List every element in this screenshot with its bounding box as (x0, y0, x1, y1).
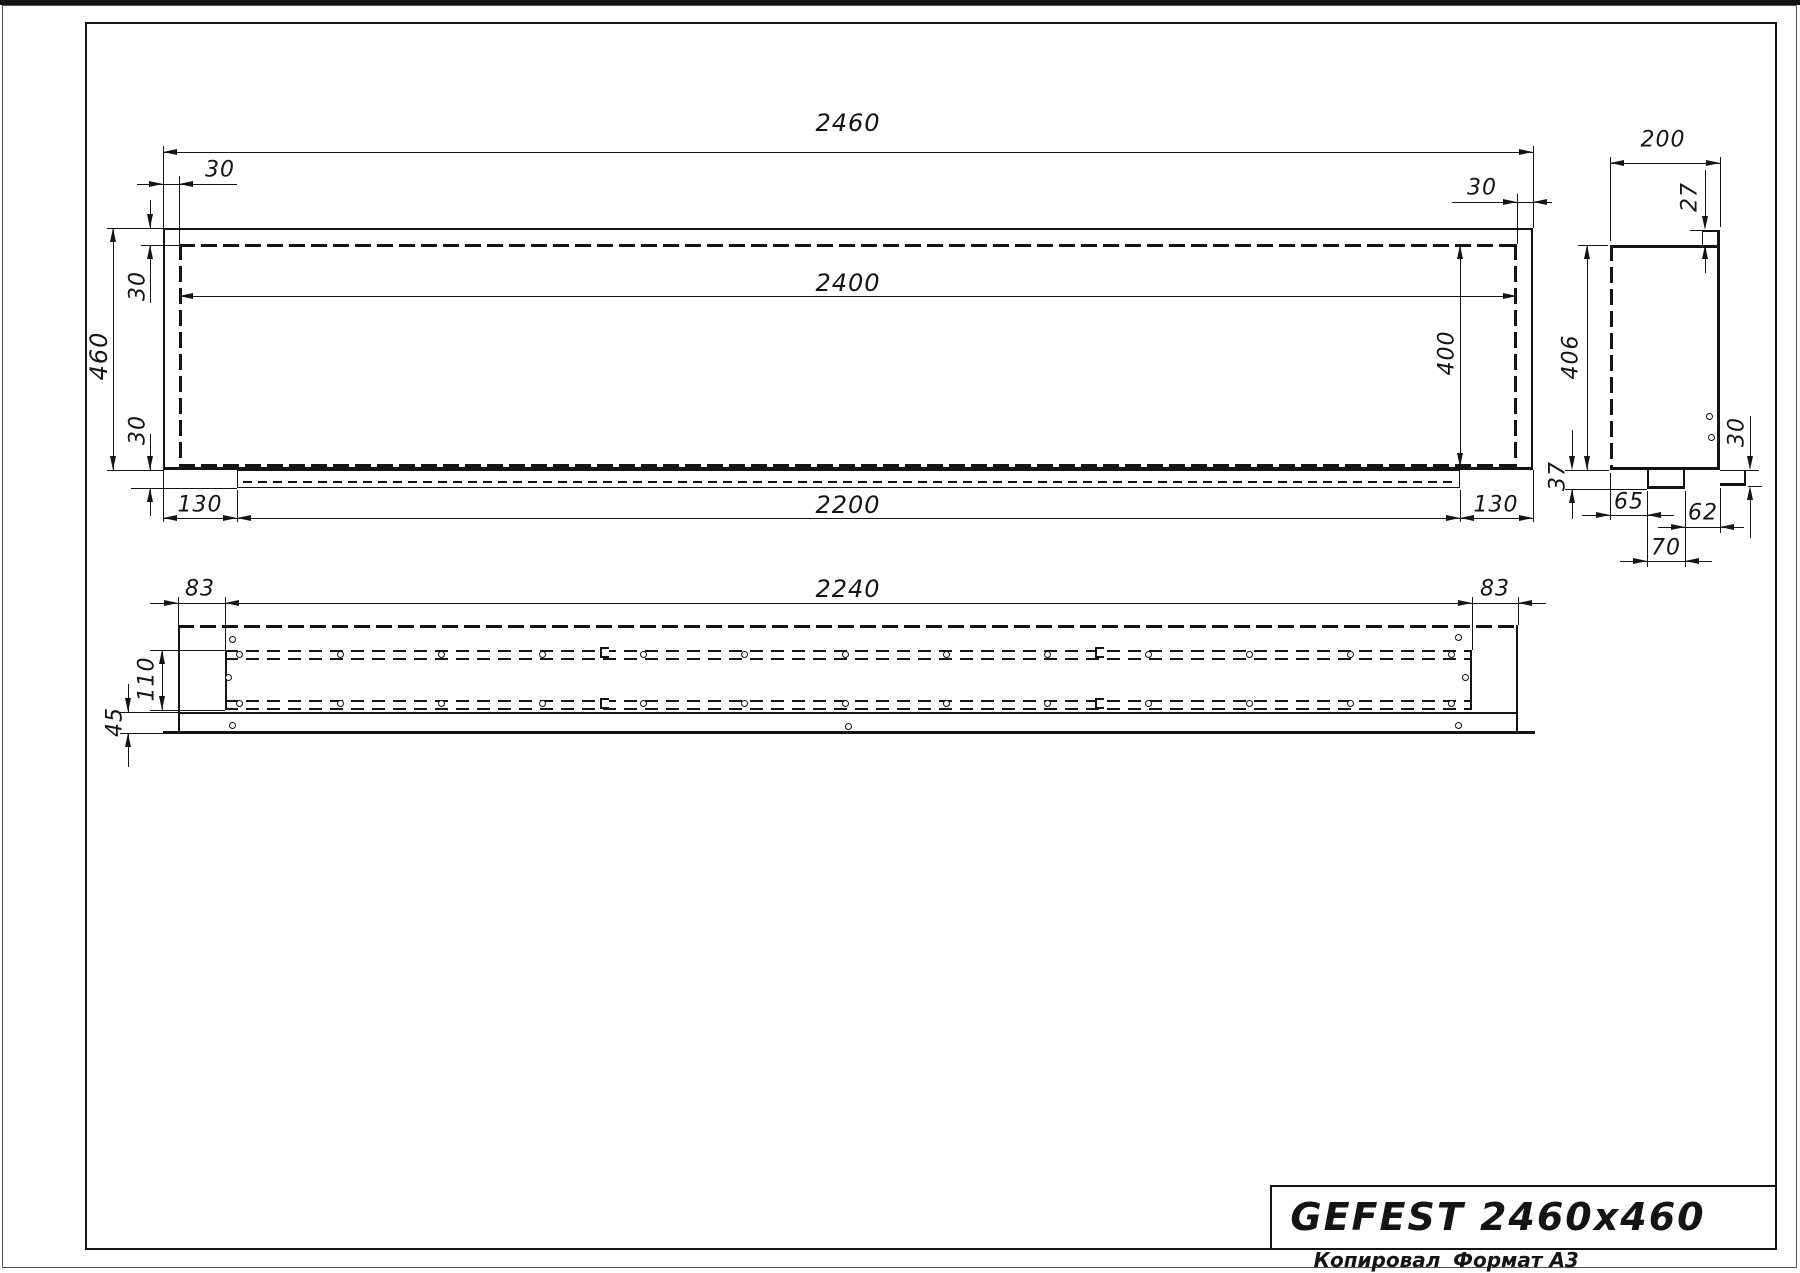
dim-side-lip: 27 (1678, 182, 1703, 212)
arrowhead (1519, 515, 1533, 521)
arrowhead (1458, 600, 1472, 606)
hidden-line (178, 625, 1518, 628)
arrowhead (1503, 293, 1517, 299)
hole-marker (539, 651, 546, 658)
title-block-title: GEFEST 2460x460 (1290, 1195, 1705, 1239)
arrowhead (1747, 486, 1753, 500)
hole-marker (741, 700, 748, 707)
arrowhead (1702, 216, 1708, 230)
ext-line (1690, 230, 1703, 231)
arrowhead (1457, 453, 1463, 467)
arrowhead (1596, 512, 1610, 518)
footer-copied-label: Копировал (1314, 1248, 1441, 1272)
dim-front-top-frame-right: 30 (1467, 176, 1497, 201)
hole-marker (337, 700, 344, 707)
dim-line (1572, 430, 1573, 456)
ext-line (1472, 597, 1473, 650)
hole-marker (741, 651, 748, 658)
hole-marker (1347, 700, 1354, 707)
arrowhead (147, 245, 153, 259)
arrowhead (1633, 558, 1647, 564)
clip-marker (600, 698, 609, 709)
clip-marker (1095, 647, 1104, 658)
dim-front-total-width: 2460 (815, 109, 880, 137)
arrowhead (110, 456, 116, 470)
hole-marker (1448, 700, 1455, 707)
dim-side-notch-offset: 65 (1614, 490, 1644, 515)
arrowhead (147, 488, 153, 502)
clip-marker (1095, 698, 1104, 709)
arrowhead (1569, 489, 1575, 503)
hole-marker (1708, 434, 1715, 441)
hidden-line (179, 244, 1517, 247)
ext-line (1517, 194, 1518, 244)
dim-bottom-margin-left: 83 (185, 577, 215, 602)
dim-line (1750, 500, 1751, 538)
dim-bottom-slot-length: 2240 (815, 575, 880, 603)
arrowhead (1446, 515, 1460, 521)
ext-line (1610, 473, 1611, 520)
hole-marker (845, 723, 852, 730)
hole-marker (337, 651, 344, 658)
hole-marker (1145, 651, 1152, 658)
side-view-outline (1610, 245, 1720, 470)
arrowhead (1519, 149, 1533, 155)
arrowhead (1647, 512, 1661, 518)
arrowhead (164, 600, 178, 606)
hole-marker (229, 722, 236, 729)
slot-end (1470, 651, 1472, 710)
side-view-ledge (1720, 470, 1746, 486)
slot-line (225, 708, 1472, 710)
dim-front-ledge-length: 2200 (815, 491, 880, 519)
dim-bottom-flange-depth: 45 (103, 707, 128, 737)
arrowhead (1584, 245, 1590, 259)
hole-marker (225, 674, 232, 681)
hole-marker (1246, 700, 1253, 707)
dim-line (163, 152, 1533, 153)
dim-line (1460, 245, 1461, 467)
arrowhead (1457, 245, 1463, 259)
dim-front-left-band-bottom: 30 (126, 415, 151, 445)
ext-line (1723, 470, 1759, 471)
hole-marker (1145, 700, 1152, 707)
hole-marker (539, 700, 546, 707)
dim-front-ledge-right: 130 (1474, 493, 1519, 518)
ledge-outline (237, 470, 1460, 488)
arrowhead (223, 515, 237, 521)
hole-marker (1246, 651, 1253, 658)
hole-marker (640, 700, 647, 707)
ext-line (1533, 470, 1534, 522)
ext-line (1647, 491, 1648, 567)
arrowhead (147, 214, 153, 228)
hole-marker (1044, 651, 1051, 658)
arrowhead (1503, 199, 1517, 205)
hole-marker (842, 651, 849, 658)
front-view-outline (163, 228, 1533, 470)
ext-line (107, 470, 163, 471)
dim-side-depth: 200 (1641, 128, 1686, 153)
dim-line (1587, 245, 1588, 470)
hidden-line (1610, 245, 1613, 470)
hidden-line (1514, 244, 1517, 467)
hole-marker (943, 651, 950, 658)
hole-marker (1706, 413, 1713, 420)
dim-line (150, 603, 1546, 604)
dim-side-flange-height: 30 (1725, 417, 1750, 447)
ext-line (163, 146, 164, 228)
ext-line (1533, 146, 1534, 228)
dim-front-top-frame-left: 30 (205, 158, 235, 183)
hole-marker (236, 700, 243, 707)
arrowhead (163, 149, 177, 155)
hole-marker (943, 700, 950, 707)
arrowhead (1706, 160, 1720, 166)
arrowhead (147, 456, 153, 470)
dim-line (1705, 170, 1706, 216)
hole-marker (438, 700, 445, 707)
ext-line (178, 597, 179, 625)
clip-marker (600, 647, 609, 658)
arrowhead (110, 228, 116, 242)
dim-front-height: 460 (85, 332, 113, 381)
dim-line (113, 228, 114, 470)
dim-front-inner-height: 400 (1435, 331, 1460, 376)
arrowhead (225, 600, 239, 606)
arrowhead (1685, 558, 1699, 564)
arrowhead (163, 515, 177, 521)
drawing-canvas: 2460 30 30 2400 460 30 30 130 2200 130 (0, 0, 1800, 1273)
hole-marker (229, 636, 236, 643)
arrowhead (159, 696, 165, 710)
bottom-view-line (178, 712, 1518, 714)
arrowhead (179, 293, 193, 299)
hole-marker (1462, 674, 1469, 681)
arrowhead (179, 181, 193, 187)
ext-line (1685, 491, 1686, 567)
dim-line (1750, 416, 1751, 456)
side-view-notch (1647, 470, 1685, 489)
ext-line (1720, 157, 1721, 227)
ext-line (1565, 470, 1609, 471)
hole-marker (438, 651, 445, 658)
arrowhead (237, 515, 251, 521)
arrowhead (1610, 160, 1624, 166)
ext-line (120, 712, 178, 713)
bottom-view-edge (1516, 625, 1518, 733)
dim-bottom-margin-right: 83 (1480, 577, 1510, 602)
hole-marker (236, 651, 243, 658)
arrowhead (1533, 199, 1547, 205)
hole-marker (640, 651, 647, 658)
dim-side-front-step: 62 (1688, 501, 1718, 526)
bottom-view-edge (178, 625, 180, 733)
drawing-frame (85, 22, 1777, 1250)
dim-side-notch-width: 70 (1651, 536, 1681, 561)
slot-line (225, 650, 1472, 652)
dim-bottom-slot-width: 110 (135, 657, 160, 702)
bottom-view-front-edge (163, 731, 1535, 734)
dim-line (1610, 163, 1720, 164)
hole-marker (1448, 651, 1455, 658)
hole-marker (1347, 651, 1354, 658)
arrowhead (1720, 524, 1734, 530)
dim-front-inner-width: 2400 (815, 269, 880, 297)
arrowhead (1702, 245, 1708, 259)
slot-line (225, 658, 1472, 660)
arrowhead (1584, 456, 1590, 470)
arrowhead (159, 650, 165, 664)
arrowhead (1671, 524, 1685, 530)
arrowhead (149, 181, 163, 187)
side-view-lip (1702, 230, 1720, 245)
footer-format-label: Формат А3 (1453, 1248, 1579, 1272)
hole-marker (1455, 634, 1462, 641)
hole-marker (1044, 700, 1051, 707)
arrowhead (1747, 456, 1753, 470)
ext-line (1578, 245, 1608, 246)
hidden-line (179, 464, 1517, 467)
hole-marker (842, 700, 849, 707)
dim-side-bottom-step: 37 (1546, 461, 1571, 491)
arrowhead (1518, 600, 1532, 606)
hidden-line (179, 244, 182, 467)
hidden-line (243, 481, 1454, 483)
dim-front-ledge-left: 130 (178, 493, 223, 518)
dim-side-inner-height: 406 (1559, 335, 1584, 380)
arrowhead (1460, 515, 1474, 521)
dim-front-left-band-top: 30 (126, 271, 151, 301)
ext-line (1610, 157, 1611, 241)
hole-marker (1455, 722, 1462, 729)
